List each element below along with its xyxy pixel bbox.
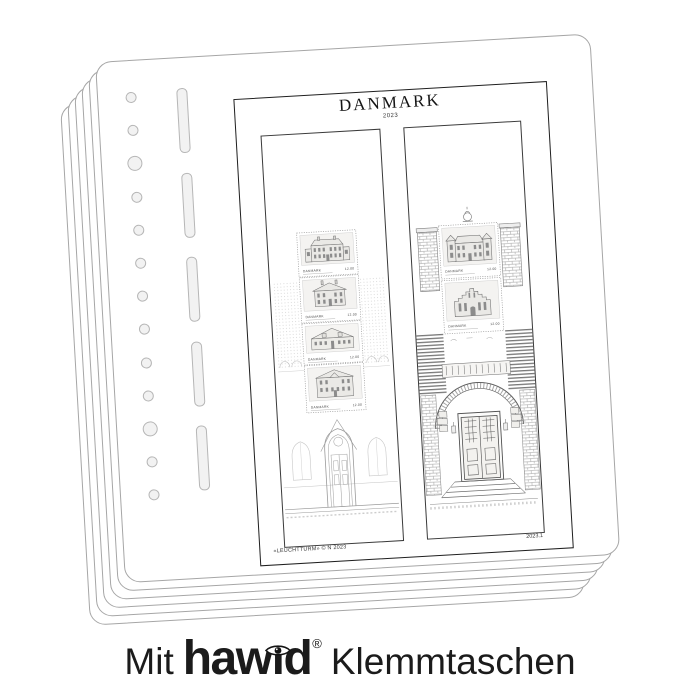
registered-mark: ® bbox=[312, 636, 322, 651]
punch-hole-circle bbox=[127, 125, 139, 137]
punch-hole-circle bbox=[131, 191, 143, 203]
hawid-logo-haw: haw bbox=[183, 632, 272, 685]
hawid-logo: hawıd bbox=[183, 632, 312, 685]
punch-hole-slot bbox=[191, 341, 206, 407]
punch-hole-circle bbox=[125, 92, 137, 104]
facade-engraving bbox=[416, 327, 542, 508]
binder-holes bbox=[96, 35, 589, 63]
stamp-value: 12.00 bbox=[353, 403, 363, 408]
strip-pocket-illustration: DANMARK 12.00 bbox=[262, 130, 403, 547]
stamp-strip-3: DANMARK 12.00 bbox=[302, 321, 363, 366]
punch-hole-circle bbox=[137, 291, 149, 303]
punch-hole-circle bbox=[127, 156, 143, 172]
punch-hole-circle bbox=[139, 324, 151, 336]
punch-hole-circle bbox=[142, 421, 158, 437]
punch-hole-circle bbox=[148, 489, 160, 501]
caption-prefix: Mit bbox=[124, 641, 173, 682]
hawid-logo-d: d bbox=[283, 632, 311, 685]
punch-hole-slot bbox=[186, 256, 201, 322]
stamp-value: 12.00 bbox=[347, 312, 357, 317]
hawid-logo-i-stem: ı bbox=[272, 632, 284, 685]
punch-hole-slot bbox=[196, 425, 211, 491]
stamp-value: 12.00 bbox=[487, 267, 497, 272]
punch-hole-circle bbox=[142, 390, 154, 402]
hawid-eye-icon bbox=[265, 644, 291, 657]
stamp-value: 12.00 bbox=[490, 322, 500, 327]
doorway-engraving bbox=[280, 416, 399, 517]
crest-ornament bbox=[462, 207, 473, 222]
punch-hole-circle bbox=[141, 357, 153, 369]
stamp-sheet-2: DANMARK 12.00 bbox=[442, 277, 504, 334]
stamp-strip-1: DANMARK 12.00 bbox=[297, 230, 359, 278]
punch-hole-circle bbox=[135, 257, 147, 269]
caption: Mithawıd®Klemmtaschen bbox=[0, 631, 700, 686]
klemmtasche-left: DANMARK 12.00 bbox=[261, 129, 405, 548]
stamp-value: 12.00 bbox=[350, 355, 360, 360]
hawid-logo-i: ı bbox=[272, 631, 284, 686]
stamp-strip-2: DANMARK 12.00 bbox=[299, 275, 361, 324]
punch-hole-slot bbox=[181, 172, 196, 238]
stamp-value: 12.00 bbox=[345, 266, 355, 271]
product-image: DANMARK 2023 bbox=[0, 0, 700, 700]
punch-hole-circle bbox=[146, 456, 158, 468]
stamp-sheet-1: DANMARK 12.00 bbox=[438, 222, 500, 279]
stamp-strip-4: DANMARK 12.00 bbox=[304, 362, 366, 413]
sheet-pocket-illustration: DANMARK 12.00 DANMARK bbox=[404, 122, 543, 539]
punch-hole-slot bbox=[176, 88, 191, 154]
punch-hole-circle bbox=[133, 224, 145, 236]
album-page-front: DANMARK 2023 bbox=[95, 33, 620, 583]
klemmtasche-right: DANMARK 12.00 DANMARK bbox=[403, 121, 545, 540]
caption-suffix: Klemmtaschen bbox=[331, 641, 576, 682]
